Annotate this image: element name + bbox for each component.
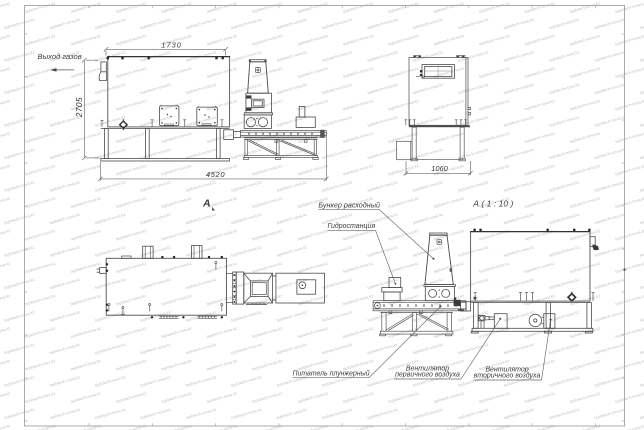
svg-text:teplotech-nova.kz: teplotech-nova.kz — [478, 293, 510, 306]
svg-text:teplotech-nova.kz: teplotech-nova.kz — [115, 98, 147, 111]
svg-text:Гидростанция: Гидростанция — [328, 222, 376, 230]
svg-text:teplotech-nova.kz: teplotech-nova.kz — [478, 261, 510, 274]
svg-text:teplotech-nova.kz: teplotech-nova.kz — [140, 374, 172, 387]
svg-text:teplotech-nova.kz: teplotech-nova.kz — [140, 147, 172, 160]
svg-text:teplotech-nova.kz: teplotech-nova.kz — [367, 114, 399, 127]
svg-text:teplotech-nova.kz: teplotech-nova.kz — [569, 358, 601, 371]
svg-text:teplotech-nova.kz: teplotech-nova.kz — [594, 147, 626, 160]
svg-text:teplotech-nova.kz: teplotech-nova.kz — [639, 342, 644, 355]
svg-text:teplotech-nova.kz: teplotech-nova.kz — [388, 391, 420, 404]
svg-text:teplotech-nova.kz: teplotech-nova.kz — [4, 114, 36, 127]
svg-text:teplotech-nova.kz: teplotech-nova.kz — [594, 17, 626, 30]
svg-text:teplotech-nova.kz: teplotech-nova.kz — [24, 66, 56, 79]
svg-text:teplotech-nova.kz: teplotech-nova.kz — [4, 212, 36, 225]
svg-text:teplotech-nova.kz: teplotech-nova.kz — [367, 374, 399, 387]
svg-text:teplotech-nova.kz: teplotech-nova.kz — [367, 309, 399, 322]
svg-text:teplotech-nova.kz: teplotech-nova.kz — [24, 196, 56, 209]
svg-text:teplotech-nova.kz: teplotech-nova.kz — [140, 407, 172, 420]
svg-text:teplotech-nova.kz: teplotech-nova.kz — [615, 163, 644, 176]
svg-text:teplotech-nova.kz: teplotech-nova.kz — [367, 179, 399, 192]
svg-text:teplotech-nova.kz: teplotech-nova.kz — [548, 407, 580, 420]
svg-text:teplotech-nova.kz: teplotech-nova.kz — [524, 33, 556, 46]
svg-text:teplotech-nova.kz: teplotech-nova.kz — [185, 212, 217, 225]
svg-text:teplotech-nova.kz: teplotech-nova.kz — [321, 407, 353, 420]
svg-text:teplotech-nova.kz: teplotech-nova.kz — [458, 17, 490, 30]
svg-text:teplotech-nova.kz: teplotech-nova.kz — [433, 98, 465, 111]
svg-text:teplotech-nova.kz: teplotech-nova.kz — [412, 407, 444, 420]
svg-text:teplotech-nova.kz: teplotech-nova.kz — [4, 17, 36, 30]
svg-text:teplotech-nova.kz: teplotech-nova.kz — [94, 374, 126, 387]
svg-text:teplotech-nova.kz: teplotech-nova.kz — [115, 163, 147, 176]
svg-text:teplotech-nova.kz: teplotech-nova.kz — [70, 391, 102, 404]
svg-text:teplotech-nova.kz: teplotech-nova.kz — [321, 49, 353, 62]
svg-text:teplotech-nova.kz: teplotech-nova.kz — [367, 82, 399, 95]
svg-text:teplotech-nova.kz: teplotech-nova.kz — [388, 66, 420, 79]
svg-text:teplotech-nova.kz: teplotech-nova.kz — [321, 309, 353, 322]
svg-text:teplotech-nova.kz: teplotech-nova.kz — [140, 82, 172, 95]
svg-text:teplotech-nova.kz: teplotech-nova.kz — [251, 423, 283, 430]
svg-text:teplotech-nova.kz: teplotech-nova.kz — [342, 98, 374, 111]
svg-text:teplotech-nova.kz: teplotech-nova.kz — [569, 423, 601, 430]
svg-text:teplotech-nova.kz: teplotech-nova.kz — [24, 326, 56, 339]
svg-text:teplotech-nova.kz: teplotech-nova.kz — [458, 407, 490, 420]
svg-text:teplotech-nova.kz: teplotech-nova.kz — [367, 147, 399, 160]
svg-text:teplotech-nova.kz: teplotech-nova.kz — [433, 196, 465, 209]
svg-text:teplotech-nova.kz: teplotech-nova.kz — [140, 179, 172, 192]
svg-text:teplotech-nova.kz: teplotech-nova.kz — [94, 17, 126, 30]
svg-text:teplotech-nova.kz: teplotech-nova.kz — [594, 342, 626, 355]
svg-text:teplotech-nova.kz: teplotech-nova.kz — [0, 228, 11, 241]
svg-text:teplotech-nova.kz: teplotech-nova.kz — [94, 342, 126, 355]
svg-text:teplotech-nova.kz: teplotech-nova.kz — [206, 131, 238, 144]
svg-text:teplotech-nova.kz: teplotech-nova.kz — [478, 423, 510, 430]
svg-text:teplotech-nova.kz: teplotech-nova.kz — [140, 342, 172, 355]
svg-text:teplotech-nova.kz: teplotech-nova.kz — [24, 358, 56, 371]
svg-text:teplotech-nova.kz: teplotech-nova.kz — [185, 407, 217, 420]
svg-text:teplotech-nova.kz: teplotech-nova.kz — [615, 66, 644, 79]
svg-text:teplotech-nova.kz: teplotech-nova.kz — [615, 293, 644, 306]
svg-text:teplotech-nova.kz: teplotech-nova.kz — [0, 33, 11, 46]
svg-text:teplotech-nova.kz: teplotech-nova.kz — [615, 33, 644, 46]
svg-text:teplotech-nova.kz: teplotech-nova.kz — [206, 98, 238, 111]
svg-text:1060: 1060 — [431, 164, 448, 173]
svg-text:teplotech-nova.kz: teplotech-nova.kz — [49, 407, 81, 420]
svg-text:teplotech-nova.kz: teplotech-nova.kz — [458, 277, 490, 290]
svg-text:teplotech-nova.kz: teplotech-nova.kz — [569, 66, 601, 79]
svg-text:teplotech-nova.kz: teplotech-nova.kz — [615, 196, 644, 209]
svg-text:teplotech-nova.kz: teplotech-nova.kz — [433, 33, 465, 46]
svg-text:teplotech-nova.kz: teplotech-nova.kz — [503, 309, 535, 322]
svg-text:teplotech-nova.kz: teplotech-nova.kz — [639, 244, 644, 257]
svg-text:teplotech-nova.kz: teplotech-nova.kz — [569, 98, 601, 111]
svg-text:teplotech-nova.kz: teplotech-nova.kz — [458, 212, 490, 225]
svg-text:teplotech-nova.kz: teplotech-nova.kz — [388, 261, 420, 274]
svg-text:teplotech-nova.kz: teplotech-nova.kz — [206, 228, 238, 241]
svg-text:teplotech-nova.kz: teplotech-nova.kz — [161, 358, 193, 371]
svg-text:teplotech-nova.kz: teplotech-nova.kz — [524, 228, 556, 241]
svg-text:teplotech-nova.kz: teplotech-nova.kz — [594, 407, 626, 420]
svg-text:teplotech-nova.kz: teplotech-nova.kz — [297, 66, 329, 79]
svg-text:teplotech-nova.kz: teplotech-nova.kz — [115, 293, 147, 306]
svg-text:teplotech-nova.kz: teplotech-nova.kz — [161, 196, 193, 209]
svg-text:teplotech-nova.kz: teplotech-nova.kz — [367, 407, 399, 420]
svg-text:teplotech-nova.kz: teplotech-nova.kz — [594, 49, 626, 62]
svg-text:teplotech-nova.kz: teplotech-nova.kz — [458, 179, 490, 192]
svg-text:teplotech-nova.kz: teplotech-nova.kz — [276, 179, 308, 192]
svg-text:teplotech-nova.kz: teplotech-nova.kz — [321, 244, 353, 257]
svg-text:teplotech-nova.kz: teplotech-nova.kz — [342, 131, 374, 144]
svg-text:teplotech-nova.kz: teplotech-nova.kz — [503, 212, 535, 225]
svg-text:teplotech-nova.kz: teplotech-nova.kz — [388, 293, 420, 306]
svg-text:teplotech-nova.kz: teplotech-nova.kz — [276, 82, 308, 95]
svg-text:teplotech-nova.kz: teplotech-nova.kz — [49, 342, 81, 355]
svg-text:вторичного воздуха: вторичного воздуха — [474, 371, 541, 379]
svg-text:teplotech-nova.kz: teplotech-nova.kz — [161, 423, 193, 430]
svg-text:teplotech-nova.kz: teplotech-nova.kz — [161, 1, 193, 14]
svg-text:teplotech-nova.kz: teplotech-nova.kz — [0, 293, 11, 306]
svg-text:teplotech-nova.kz: teplotech-nova.kz — [140, 277, 172, 290]
svg-text:teplotech-nova.kz: teplotech-nova.kz — [548, 374, 580, 387]
svg-text:teplotech-nova.kz: teplotech-nova.kz — [0, 98, 11, 111]
svg-text:teplotech-nova.kz: teplotech-nova.kz — [342, 163, 374, 176]
svg-text:teplotech-nova.kz: teplotech-nova.kz — [297, 326, 329, 339]
svg-text:teplotech-nova.kz: teplotech-nova.kz — [0, 196, 11, 209]
svg-text:teplotech-nova.kz: teplotech-nova.kz — [524, 423, 556, 430]
svg-text:teplotech-nova.kz: teplotech-nova.kz — [615, 358, 644, 371]
svg-text:teplotech-nova.kz: teplotech-nova.kz — [94, 179, 126, 192]
svg-text:teplotech-nova.kz: teplotech-nova.kz — [24, 228, 56, 241]
svg-text:teplotech-nova.kz: teplotech-nova.kz — [24, 163, 56, 176]
svg-text:teplotech-nova.kz: teplotech-nova.kz — [70, 326, 102, 339]
svg-text:teplotech-nova.kz: teplotech-nova.kz — [478, 228, 510, 241]
svg-text:teplotech-nova.kz: teplotech-nova.kz — [185, 179, 217, 192]
svg-text:teplotech-nova.kz: teplotech-nova.kz — [569, 33, 601, 46]
svg-text:teplotech-nova.kz: teplotech-nova.kz — [478, 1, 510, 14]
svg-text:teplotech-nova.kz: teplotech-nova.kz — [548, 309, 580, 322]
svg-text:teplotech-nova.kz: teplotech-nova.kz — [115, 196, 147, 209]
svg-text:2705: 2705 — [74, 97, 84, 118]
svg-text:teplotech-nova.kz: teplotech-nova.kz — [0, 131, 11, 144]
svg-text:teplotech-nova.kz: teplotech-nova.kz — [639, 309, 644, 322]
svg-text:teplotech-nova.kz: teplotech-nova.kz — [251, 33, 283, 46]
svg-text:teplotech-nova.kz: teplotech-nova.kz — [251, 196, 283, 209]
svg-text:teplotech-nova.kz: teplotech-nova.kz — [49, 374, 81, 387]
svg-text:teplotech-nova.kz: teplotech-nova.kz — [321, 17, 353, 30]
svg-text:teplotech-nova.kz: teplotech-nova.kz — [185, 277, 217, 290]
svg-text:teplotech-nova.kz: teplotech-nova.kz — [94, 82, 126, 95]
svg-text:teplotech-nova.kz: teplotech-nova.kz — [478, 98, 510, 111]
svg-text:teplotech-nova.kz: teplotech-nova.kz — [4, 374, 36, 387]
svg-text:teplotech-nova.kz: teplotech-nova.kz — [548, 82, 580, 95]
svg-text:teplotech-nova.kz: teplotech-nova.kz — [276, 309, 308, 322]
svg-text:teplotech-nova.kz: teplotech-nova.kz — [251, 326, 283, 339]
svg-text:Питатель плунжерный: Питатель плунжерный — [293, 369, 370, 377]
svg-text:teplotech-nova.kz: teplotech-nova.kz — [297, 1, 329, 14]
svg-text:teplotech-nova.kz: teplotech-nova.kz — [276, 114, 308, 127]
svg-text:teplotech-nova.kz: teplotech-nova.kz — [433, 1, 465, 14]
svg-text:teplotech-nova.kz: teplotech-nova.kz — [297, 228, 329, 241]
svg-text:teplotech-nova.kz: teplotech-nova.kz — [297, 293, 329, 306]
svg-text:teplotech-nova.kz: teplotech-nova.kz — [615, 391, 644, 404]
svg-text:teplotech-nova.kz: teplotech-nova.kz — [276, 244, 308, 257]
svg-text:teplotech-nova.kz: teplotech-nova.kz — [639, 114, 644, 127]
svg-text:teplotech-nova.kz: teplotech-nova.kz — [548, 179, 580, 192]
svg-text:teplotech-nova.kz: teplotech-nova.kz — [524, 261, 556, 274]
svg-text:teplotech-nova.kz: teplotech-nova.kz — [0, 391, 11, 404]
svg-text:teplotech-nova.kz: teplotech-nova.kz — [94, 212, 126, 225]
svg-text:teplotech-nova.kz: teplotech-nova.kz — [569, 391, 601, 404]
svg-text:teplotech-nova.kz: teplotech-nova.kz — [0, 326, 11, 339]
svg-text:teplotech-nova.kz: teplotech-nova.kz — [615, 98, 644, 111]
svg-text:teplotech-nova.kz: teplotech-nova.kz — [615, 261, 644, 274]
svg-text:teplotech-nova.kz: teplotech-nova.kz — [503, 147, 535, 160]
svg-text:teplotech-nova.kz: teplotech-nova.kz — [161, 131, 193, 144]
svg-text:teplotech-nova.kz: teplotech-nova.kz — [4, 179, 36, 192]
svg-text:teplotech-nova.kz: teplotech-nova.kz — [115, 1, 147, 14]
svg-text:teplotech-nova.kz: teplotech-nova.kz — [231, 342, 263, 355]
svg-text:teplotech-nova.kz: teplotech-nova.kz — [231, 374, 263, 387]
svg-text:teplotech-nova.kz: teplotech-nova.kz — [276, 212, 308, 225]
svg-text:teplotech-nova.kz: teplotech-nova.kz — [0, 66, 11, 79]
svg-text:teplotech-nova.kz: teplotech-nova.kz — [321, 114, 353, 127]
svg-text:teplotech-nova.kz: teplotech-nova.kz — [206, 1, 238, 14]
svg-text:teplotech-nova.kz: teplotech-nova.kz — [276, 17, 308, 30]
svg-text:teplotech-nova.kz: teplotech-nova.kz — [297, 423, 329, 430]
svg-text:teplotech-nova.kz: teplotech-nova.kz — [639, 374, 644, 387]
svg-text:teplotech-nova.kz: teplotech-nova.kz — [503, 49, 535, 62]
svg-text:teplotech-nova.kz: teplotech-nova.kz — [4, 49, 36, 62]
svg-text:teplotech-nova.kz: teplotech-nova.kz — [367, 17, 399, 30]
svg-text:teplotech-nova.kz: teplotech-nova.kz — [185, 82, 217, 95]
svg-text:teplotech-nova.kz: teplotech-nova.kz — [94, 407, 126, 420]
svg-text:teplotech-nova.kz: teplotech-nova.kz — [478, 66, 510, 79]
svg-text:teplotech-nova.kz: teplotech-nova.kz — [161, 66, 193, 79]
svg-text:teplotech-nova.kz: teplotech-nova.kz — [412, 17, 444, 30]
svg-text:teplotech-nova.kz: teplotech-nova.kz — [524, 1, 556, 14]
svg-text:teplotech-nova.kz: teplotech-nova.kz — [548, 49, 580, 62]
svg-text:teplotech-nova.kz: teplotech-nova.kz — [503, 342, 535, 355]
svg-text:teplotech-nova.kz: teplotech-nova.kz — [70, 66, 102, 79]
svg-text:teplotech-nova.kz: teplotech-nova.kz — [478, 163, 510, 176]
svg-text:teplotech-nova.kz: teplotech-nova.kz — [70, 423, 102, 430]
svg-text:teplotech-nova.kz: teplotech-nova.kz — [251, 261, 283, 274]
svg-text:teplotech-nova.kz: teplotech-nova.kz — [388, 423, 420, 430]
svg-text:teplotech-nova.kz: teplotech-nova.kz — [115, 326, 147, 339]
svg-text:teplotech-nova.kz: teplotech-nova.kz — [70, 163, 102, 176]
svg-text:teplotech-nova.kz: teplotech-nova.kz — [70, 1, 102, 14]
svg-text:teplotech-nova.kz: teplotech-nova.kz — [388, 131, 420, 144]
svg-text:teplotech-nova.kz: teplotech-nova.kz — [548, 342, 580, 355]
svg-text:teplotech-nova.kz: teplotech-nova.kz — [251, 391, 283, 404]
svg-text:4520: 4520 — [206, 170, 225, 179]
svg-text:teplotech-nova.kz: teplotech-nova.kz — [615, 326, 644, 339]
svg-text:teplotech-nova.kz: teplotech-nova.kz — [458, 147, 490, 160]
svg-text:teplotech-nova.kz: teplotech-nova.kz — [503, 179, 535, 192]
svg-text:teplotech-nova.kz: teplotech-nova.kz — [524, 131, 556, 144]
svg-text:teplotech-nova.kz: teplotech-nova.kz — [115, 66, 147, 79]
svg-text:teplotech-nova.kz: teplotech-nova.kz — [231, 17, 263, 30]
svg-text:teplotech-nova.kz: teplotech-nova.kz — [321, 342, 353, 355]
svg-text:teplotech-nova.kz: teplotech-nova.kz — [503, 277, 535, 290]
svg-text:teplotech-nova.kz: teplotech-nova.kz — [433, 326, 465, 339]
svg-text:А: А — [202, 198, 211, 210]
svg-text:teplotech-nova.kz: teplotech-nova.kz — [321, 179, 353, 192]
svg-text:teplotech-nova.kz: teplotech-nova.kz — [49, 277, 81, 290]
svg-text:teplotech-nova.kz: teplotech-nova.kz — [251, 1, 283, 14]
svg-text:teplotech-nova.kz: teplotech-nova.kz — [70, 358, 102, 371]
svg-text:teplotech-nova.kz: teplotech-nova.kz — [24, 391, 56, 404]
svg-text:teplotech-nova.kz: teplotech-nova.kz — [594, 82, 626, 95]
svg-text:teplotech-nova.kz: teplotech-nova.kz — [433, 66, 465, 79]
svg-text:teplotech-nova.kz: teplotech-nova.kz — [367, 244, 399, 257]
svg-text:teplotech-nova.kz: teplotech-nova.kz — [24, 261, 56, 274]
svg-text:teplotech-nova.kz: teplotech-nova.kz — [548, 17, 580, 30]
svg-text:teplotech-nova.kz: teplotech-nova.kz — [639, 277, 644, 290]
svg-text:teplotech-nova.kz: teplotech-nova.kz — [615, 1, 644, 14]
svg-text:teplotech-nova.kz: teplotech-nova.kz — [524, 391, 556, 404]
svg-text:teplotech-nova.kz: teplotech-nova.kz — [594, 277, 626, 290]
svg-text:teplotech-nova.kz: teplotech-nova.kz — [140, 17, 172, 30]
svg-text:teplotech-nova.kz: teplotech-nova.kz — [49, 309, 81, 322]
svg-text:teplotech-nova.kz: teplotech-nova.kz — [115, 228, 147, 241]
svg-text:teplotech-nova.kz: teplotech-nova.kz — [94, 309, 126, 322]
svg-text:teplotech-nova.kz: teplotech-nova.kz — [115, 391, 147, 404]
svg-text:teplotech-nova.kz: teplotech-nova.kz — [0, 423, 11, 430]
svg-text:teplotech-nova.kz: teplotech-nova.kz — [342, 228, 374, 241]
svg-text:teplotech-nova.kz: teplotech-nova.kz — [412, 277, 444, 290]
svg-text:teplotech-nova.kz: teplotech-nova.kz — [297, 33, 329, 46]
svg-text:teplotech-nova.kz: teplotech-nova.kz — [639, 179, 644, 192]
svg-text:teplotech-nova.kz: teplotech-nova.kz — [342, 1, 374, 14]
svg-text:teplotech-nova.kz: teplotech-nova.kz — [297, 98, 329, 111]
svg-text:teplotech-nova.kz: teplotech-nova.kz — [639, 82, 644, 95]
svg-text:teplotech-nova.kz: teplotech-nova.kz — [412, 179, 444, 192]
svg-text:teplotech-nova.kz: teplotech-nova.kz — [569, 196, 601, 209]
svg-text:teplotech-nova.kz: teplotech-nova.kz — [24, 293, 56, 306]
svg-text:teplotech-nova.kz: teplotech-nova.kz — [503, 82, 535, 95]
svg-text:teplotech-nova.kz: teplotech-nova.kz — [206, 33, 238, 46]
svg-text:teplotech-nova.kz: teplotech-nova.kz — [24, 33, 56, 46]
svg-text:teplotech-nova.kz: teplotech-nova.kz — [206, 196, 238, 209]
svg-text:teplotech-nova.kz: teplotech-nova.kz — [594, 179, 626, 192]
svg-text:teplotech-nova.kz: teplotech-nova.kz — [276, 49, 308, 62]
svg-text:teplotech-nova.kz: teplotech-nova.kz — [206, 423, 238, 430]
svg-text:teplotech-nova.kz: teplotech-nova.kz — [412, 82, 444, 95]
svg-text:teplotech-nova.kz: teplotech-nova.kz — [231, 49, 263, 62]
svg-text:teplotech-nova.kz: teplotech-nova.kz — [24, 131, 56, 144]
svg-text:teplotech-nova.kz: teplotech-nova.kz — [115, 33, 147, 46]
svg-text:teplotech-nova.kz: teplotech-nova.kz — [185, 374, 217, 387]
svg-text:teplotech-nova.kz: teplotech-nova.kz — [569, 163, 601, 176]
svg-text:teplotech-nova.kz: teplotech-nova.kz — [503, 244, 535, 257]
svg-text:teplotech-nova.kz: teplotech-nova.kz — [206, 326, 238, 339]
svg-text:teplotech-nova.kz: teplotech-nova.kz — [4, 407, 36, 420]
svg-text:teplotech-nova.kz: teplotech-nova.kz — [342, 423, 374, 430]
svg-text:teplotech-nova.kz: teplotech-nova.kz — [548, 212, 580, 225]
svg-text:teplotech-nova.kz: teplotech-nova.kz — [4, 277, 36, 290]
svg-text:teplotech-nova.kz: teplotech-nova.kz — [70, 293, 102, 306]
svg-text:teplotech-nova.kz: teplotech-nova.kz — [503, 114, 535, 127]
svg-text:teplotech-nova.kz: teplotech-nova.kz — [433, 261, 465, 274]
svg-text:teplotech-nova.kz: teplotech-nova.kz — [231, 212, 263, 225]
svg-text:teplotech-nova.kz: teplotech-nova.kz — [276, 407, 308, 420]
svg-text:teplotech-nova.kz: teplotech-nova.kz — [594, 114, 626, 127]
svg-text:teplotech-nova.kz: teplotech-nova.kz — [94, 277, 126, 290]
svg-text:teplotech-nova.kz: teplotech-nova.kz — [615, 423, 644, 430]
svg-text:teplotech-nova.kz: teplotech-nova.kz — [49, 244, 81, 257]
svg-text:teplotech-nova.kz: teplotech-nova.kz — [70, 33, 102, 46]
svg-text:teplotech-nova.kz: teplotech-nova.kz — [388, 1, 420, 14]
svg-text:teplotech-nova.kz: teplotech-nova.kz — [70, 131, 102, 144]
svg-text:teplotech-nova.kz: teplotech-nova.kz — [388, 228, 420, 241]
svg-text:teplotech-nova.kz: teplotech-nova.kz — [594, 309, 626, 322]
svg-text:teplotech-nova.kz: teplotech-nova.kz — [388, 33, 420, 46]
svg-text:teplotech-nova.kz: teplotech-nova.kz — [231, 407, 263, 420]
svg-text:teplotech-nova.kz: teplotech-nova.kz — [594, 212, 626, 225]
svg-text:teplotech-nova.kz: teplotech-nova.kz — [297, 261, 329, 274]
svg-text:teplotech-nova.kz: teplotech-nova.kz — [388, 98, 420, 111]
svg-text:teplotech-nova.kz: teplotech-nova.kz — [4, 309, 36, 322]
svg-text:teplotech-nova.kz: teplotech-nova.kz — [0, 1, 11, 14]
svg-text:teplotech-nova.kz: teplotech-nova.kz — [0, 163, 11, 176]
svg-text:teplotech-nova.kz: teplotech-nova.kz — [412, 147, 444, 160]
svg-text:teplotech-nova.kz: teplotech-nova.kz — [251, 228, 283, 241]
svg-text:teplotech-nova.kz: teplotech-nova.kz — [388, 163, 420, 176]
svg-text:teplotech-nova.kz: teplotech-nova.kz — [24, 423, 56, 430]
svg-text:teplotech-nova.kz: teplotech-nova.kz — [321, 277, 353, 290]
svg-text:teplotech-nova.kz: teplotech-nova.kz — [231, 179, 263, 192]
svg-text:teplotech-nova.kz: teplotech-nova.kz — [321, 82, 353, 95]
svg-text:teplotech-nova.kz: teplotech-nova.kz — [251, 358, 283, 371]
svg-text:teplotech-nova.kz: teplotech-nova.kz — [49, 17, 81, 30]
svg-text:teplotech-nova.kz: teplotech-nova.kz — [458, 244, 490, 257]
svg-text:teplotech-nova.kz: teplotech-nova.kz — [388, 196, 420, 209]
svg-text:teplotech-nova.kz: teplotech-nova.kz — [367, 49, 399, 62]
svg-text:teplotech-nova.kz: teplotech-nova.kz — [206, 391, 238, 404]
svg-text:teplotech-nova.kz: teplotech-nova.kz — [4, 82, 36, 95]
svg-text:teplotech-nova.kz: teplotech-nova.kz — [161, 261, 193, 274]
svg-text:teplotech-nova.kz: teplotech-nova.kz — [94, 244, 126, 257]
svg-text:teplotech-nova.kz: teplotech-nova.kz — [342, 66, 374, 79]
svg-text:teplotech-nova.kz: teplotech-nova.kz — [115, 261, 147, 274]
svg-text:teplotech-nova.kz: teplotech-nova.kz — [24, 1, 56, 14]
svg-text:teplotech-nova.kz: teplotech-nova.kz — [548, 277, 580, 290]
svg-text:teplotech-nova.kz: teplotech-nova.kz — [185, 17, 217, 30]
svg-text:teplotech-nova.kz: teplotech-nova.kz — [478, 391, 510, 404]
svg-text:teplotech-nova.kz: teplotech-nova.kz — [49, 212, 81, 225]
svg-text:teplotech-nova.kz: teplotech-nova.kz — [503, 407, 535, 420]
svg-text:teplotech-nova.kz: teplotech-nova.kz — [548, 114, 580, 127]
svg-text:teplotech-nova.kz: teplotech-nova.kz — [0, 358, 11, 371]
svg-text:teplotech-nova.kz: teplotech-nova.kz — [49, 82, 81, 95]
svg-text:teplotech-nova.kz: teplotech-nova.kz — [594, 374, 626, 387]
svg-text:teplotech-nova.kz: teplotech-nova.kz — [161, 163, 193, 176]
svg-text:teplotech-nova.kz: teplotech-nova.kz — [478, 131, 510, 144]
svg-text:teplotech-nova.kz: teplotech-nova.kz — [524, 66, 556, 79]
svg-text:teplotech-nova.kz: teplotech-nova.kz — [4, 342, 36, 355]
svg-text:teplotech-nova.kz: teplotech-nova.kz — [639, 147, 644, 160]
svg-text:teplotech-nova.kz: teplotech-nova.kz — [115, 358, 147, 371]
svg-text:teplotech-nova.kz: teplotech-nova.kz — [0, 261, 11, 274]
svg-text:teplotech-nova.kz: teplotech-nova.kz — [433, 423, 465, 430]
svg-text:teplotech-nova.kz: teplotech-nova.kz — [342, 391, 374, 404]
svg-text:teplotech-nova.kz: teplotech-nova.kz — [161, 391, 193, 404]
svg-text:teplotech-nova.kz: teplotech-nova.kz — [70, 228, 102, 241]
svg-text:Выход газов: Выход газов — [38, 52, 82, 61]
svg-text:teplotech-nova.kz: teplotech-nova.kz — [342, 33, 374, 46]
svg-text:teplotech-nova.kz: teplotech-nova.kz — [276, 342, 308, 355]
svg-text:teplotech-nova.kz: teplotech-nova.kz — [206, 66, 238, 79]
